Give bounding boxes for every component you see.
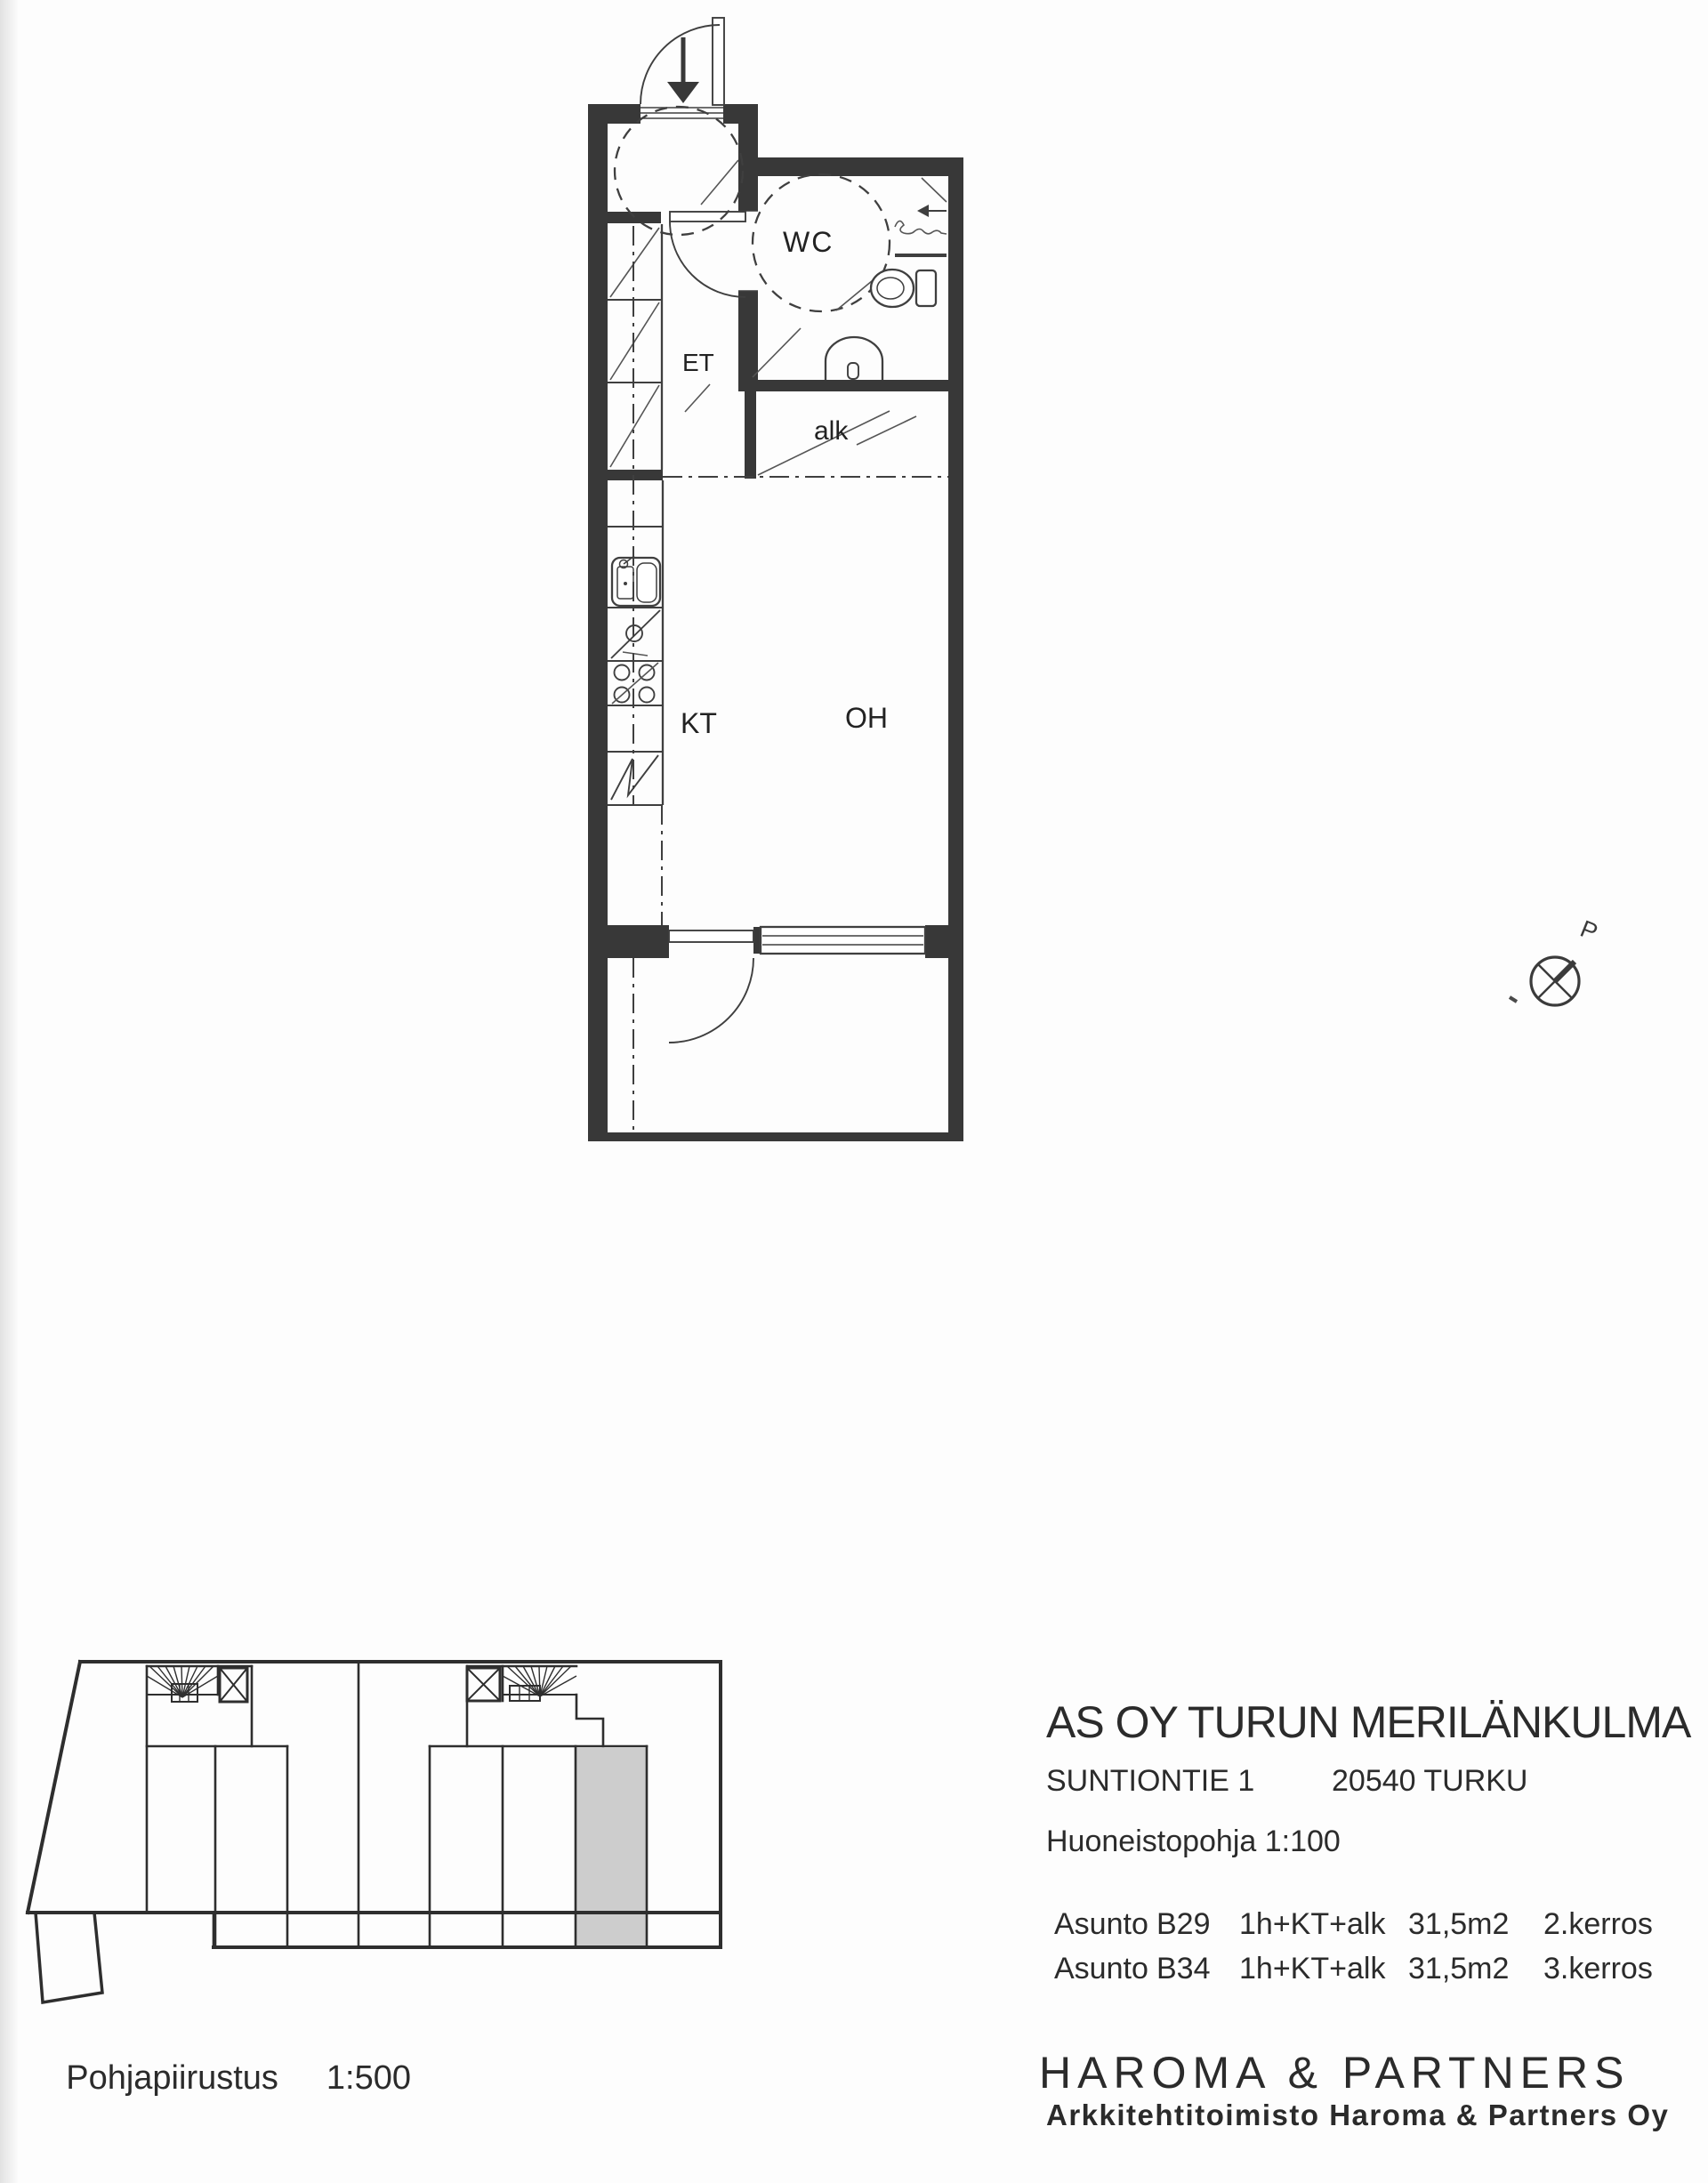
- scanned-floorplan-sheet: ET WC alk KT OH P Pohjapiirustus1:500 AS…: [0, 0, 1708, 2183]
- room-label-kt: KT: [681, 709, 717, 737]
- stairwell-2: [467, 1666, 603, 1746]
- reference-lines: [633, 226, 948, 1130]
- balcony-door: [669, 930, 753, 1043]
- apartment-id: B34: [1156, 1953, 1211, 1984]
- shower-symbol: [895, 205, 947, 234]
- room-label-et: ET: [682, 350, 714, 375]
- apartment-layout: 1h+KT+alk: [1239, 1953, 1385, 1984]
- firm-name: HAROMA & PARTNERS: [1039, 2050, 1630, 2095]
- hall-closet: [608, 224, 662, 470]
- room-label-alk: alk: [814, 418, 848, 445]
- drawing-canvas: [0, 0, 1708, 2183]
- apartment-floor-plan: [588, 18, 963, 1141]
- apartment-layout: 1h+KT+alk: [1239, 1909, 1385, 1939]
- kitchen-sink: [612, 556, 660, 606]
- unit-dividers: [147, 1662, 647, 1947]
- kitchen-counter: [608, 480, 663, 805]
- stair-fan-1: [147, 1666, 218, 1697]
- stove-burners: [612, 663, 658, 704]
- apartment-area: 31,5m2: [1408, 1909, 1509, 1939]
- apartment-area: 31,5m2: [1408, 1953, 1509, 1984]
- window: [761, 927, 925, 954]
- room-label-wc: WC: [783, 228, 834, 256]
- apartment-label: Asunto: [1054, 1909, 1148, 1939]
- plan-type-label: Huoneistopohja 1:100: [1046, 1826, 1341, 1857]
- wc-washbasin: [826, 337, 882, 380]
- site-plan-scale: 1:500: [326, 2059, 411, 2097]
- walls: [588, 104, 963, 1141]
- project-street: SUNTIONTIE 1: [1046, 1766, 1254, 1796]
- apartment-row: Asunto B34 1h+KT+alk 31,5m2 3.kerros: [1054, 1953, 1695, 1989]
- firm-subtitle: Arkkitehtitoimisto Haroma & Partners Oy: [1046, 2100, 1669, 2130]
- elevator-1: [220, 1668, 247, 1702]
- apartment-floor: 2.kerros: [1543, 1909, 1653, 1939]
- site-plan-caption-text: Pohjapiirustus: [66, 2059, 278, 2097]
- apartment-label: Asunto: [1054, 1953, 1148, 1984]
- dishwasher-symbol: [611, 610, 660, 658]
- site-plan: [28, 1662, 721, 2002]
- apartment-row: Asunto B29 1h+KT+alk 31,5m2 2.kerros: [1054, 1909, 1695, 1945]
- stairwell-1: [147, 1666, 252, 1913]
- site-plan-caption: Pohjapiirustus1:500: [28, 2027, 411, 2129]
- room-label-oh: OH: [845, 704, 888, 732]
- apartment-id: B29: [1156, 1909, 1211, 1939]
- elevator-2: [467, 1668, 500, 1701]
- highlighted-unit: [576, 1748, 647, 1947]
- north-arrow: [1510, 957, 1579, 1005]
- toilet: [871, 270, 936, 307]
- project-name: AS OY TURUN MERILÄNKULMA: [1046, 1700, 1690, 1744]
- entry-direction-arrow: [667, 37, 699, 103]
- apartment-floor: 3.kerros: [1543, 1953, 1653, 1984]
- project-postal-city: 20540 TURKU: [1332, 1766, 1528, 1796]
- wc-door: [670, 212, 745, 297]
- fridge-symbol: [611, 755, 658, 800]
